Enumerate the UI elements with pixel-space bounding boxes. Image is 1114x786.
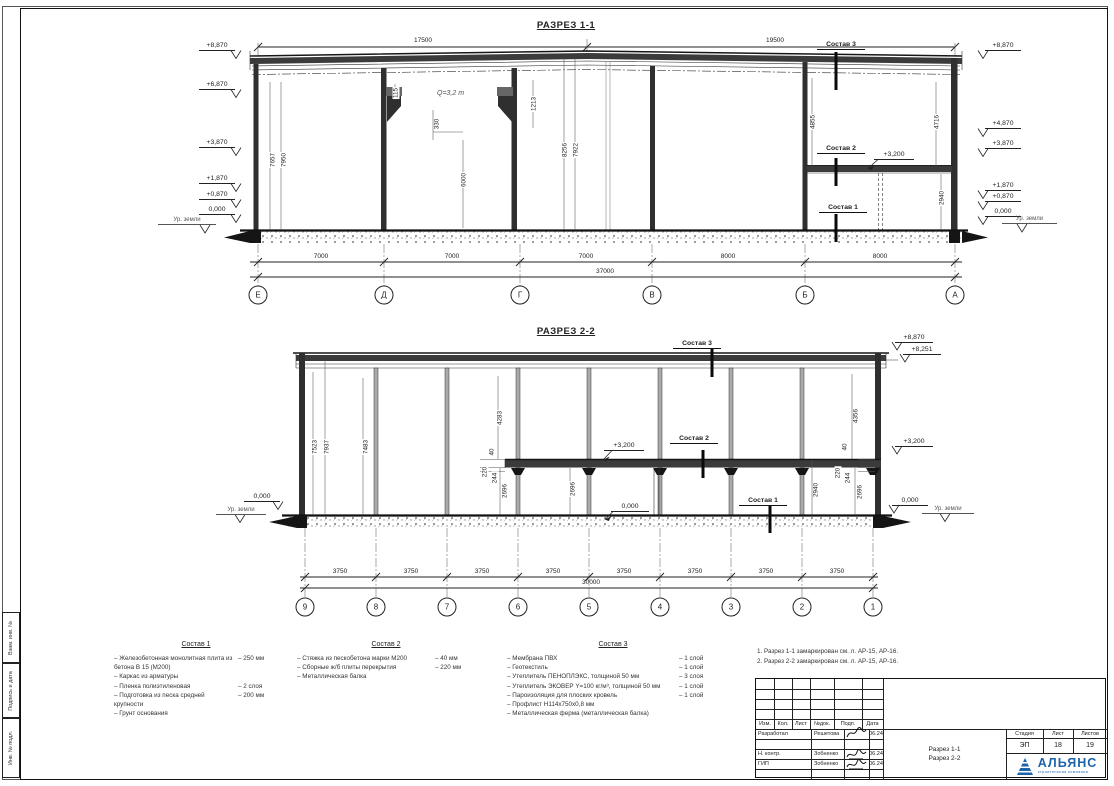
dim-1213: 1213 [531,96,538,112]
dim-7483: 7483 [363,439,370,455]
tb-name: Решетова [812,729,846,739]
legend-title: Состав 1 [114,640,278,650]
legend-item: – Подготовка из песка средней крупности–… [114,691,278,709]
axis-bubble: 8 [367,598,386,617]
dim-2940: 2940 [813,482,820,498]
sostav1-label: Состав 1 [819,203,867,213]
tb-date: 06.24 [869,729,883,739]
dim-4855: 4855 [810,114,817,130]
elevation-mark: +0,870 [199,190,235,200]
section1-geometry [200,39,1027,286]
legend-item-value [238,709,278,718]
axis-bubble: Е [249,286,268,305]
legend-title: Состав 2 [297,640,475,650]
section2-columns [374,368,804,515]
company-logo: АЛЬЯНС строительная компания [1006,753,1107,779]
dim-span: 7000 [445,253,459,260]
dim-4356: 4356 [853,408,860,424]
axis-bubble: 5 [580,598,599,617]
dim-span: 3750 [617,568,631,575]
dim-220: 220 [482,466,489,479]
legend-item-value [238,672,278,681]
tb-col-list: Лист [792,719,810,729]
tb-date: 06.24 [869,749,883,759]
elevation-mark: +3,870 [199,138,235,148]
legend-item: – Пароизоляция для плоских кровель– 1 сл… [507,691,719,700]
dim-total: 37000 [596,268,614,275]
dim-span: 8000 [873,253,887,260]
tb-stage-value: ЭП [1006,738,1043,753]
dim-4716: 4716 [934,114,941,130]
dim-span: 3750 [688,568,702,575]
elevation-mark: +8,870 [199,41,235,51]
legend-item-value [679,709,719,718]
elevation-mark: +8,870 [985,41,1021,51]
axis-bubble: Д [375,286,394,305]
legend-item: – Утеплитель ПЕНОПЛЭКС, толщиной 50 мм– … [507,672,719,681]
elevation-mark: +1,870 [985,181,1021,191]
legend-item-text: – Геотекстиль [507,663,676,672]
elevation-mark: +3,870 [985,139,1021,149]
legend-item-value: – 1 слой [679,663,719,672]
legend-item-value: – 1 слой [679,654,719,663]
elevation-mark: 0,000 [244,492,280,502]
legend-item: – Каркас из арматуры [114,672,278,681]
dim-40: 40 [489,447,496,456]
dim-span: 3750 [475,568,489,575]
sostav1-label: Состав 1 [739,496,787,506]
doc-title: Разрез 1-1 Разрез 2-2 [883,729,1006,779]
section2-geometry [235,342,950,598]
axis-bubble: 3 [722,598,741,617]
tb-col-kol: Кол. [774,719,792,729]
strip-cell-inv: Инв. № подл. [2,718,20,778]
dim-span: 17500 [414,37,432,44]
sostav2-label: Состав 2 [817,144,865,154]
section1-title: РАЗРЕЗ 1-1 [537,20,595,31]
legend-item-value [435,672,475,681]
ground-level-label: Ур. земли [216,506,266,515]
dim-total: 30000 [582,579,600,586]
dim-span: 3750 [759,568,773,575]
legend-item-text: – Металлическая балка [297,672,432,681]
strip-cell-vzam: Взам. инв. № [2,612,20,663]
legend-item: – Мембрана ПВХ– 1 слой [507,654,719,663]
legend-item-text: – Каркас из арматуры [114,672,235,681]
legend-item-value [679,700,719,709]
dim-span: 3750 [404,568,418,575]
tb-col-izm: Изм. [756,719,774,729]
tb-col-ndok: №док. [810,719,834,729]
dim-2696: 2696 [502,483,509,499]
legend-item-text: – Пароизоляция для плоских кровель [507,691,676,700]
legend-item-value: – 2 слоя [238,682,278,691]
mezzanine-slab [807,166,952,172]
elevation-mark: 0,000 [199,205,235,215]
legend-sostav-3: Состав 3 – Мембрана ПВХ– 1 слой – Геотек… [507,640,719,718]
logo-pyramid-icon [1016,757,1034,776]
axis-bubble: В [643,286,662,305]
legend-item-text: – Утеплитель ПЕНОПЛЭКС, толщиной 50 мм [507,672,676,681]
dim-7657: 7657 [270,152,277,168]
tb-name: Зобненко [812,759,846,769]
axis-bubble: 2 [793,598,812,617]
ground-level-label: Ур. земли [1002,215,1057,224]
level-0-label: 0,000 [611,502,649,512]
elevation-mark: +6,870 [199,80,235,90]
dim-8256: 8256 [562,142,569,158]
tb-role: Разработал [756,729,813,739]
legend-item: – Металлическая ферма (металлическая бал… [507,709,719,718]
dim-7922: 7922 [573,142,580,158]
elevation-mark: +8,870 [895,333,933,343]
legend-item: – Сборные ж/б плиты перекрытия– 220 мм [297,663,475,672]
axis-bubble: 9 [296,598,315,617]
doc-title-line2: Разрез 2-2 [929,755,961,762]
logo-subtext: строительная компания [1038,771,1098,775]
legend-item-text: – Профлист Н114х750х0,8 мм [507,700,676,709]
legend-item-text: – Стяжка из пескобетона марки М200 [297,654,432,663]
dim-2696: 2696 [570,481,577,497]
dim-span: 19500 [766,37,784,44]
doc-title-line1: Разрез 1-1 [929,746,961,753]
elevation-mark: +3,200 [895,437,933,447]
legend-title: Состав 3 [507,640,719,650]
tb-sheet-label: Лист [1043,729,1073,738]
note-line: 2. Разрез 2-2 замаркирован см. л. АР-15,… [757,658,898,665]
dim-span: 7000 [579,253,593,260]
legend-item-value: – 220 мм [435,663,475,672]
legend-item-text: – Пленка полиэтиленовая [114,682,235,691]
level-3200-label: +3,200 [604,441,644,451]
legend-item-value: – 1 слой [679,691,719,700]
tb-date: 06.24 [869,759,883,769]
section2-ground [269,516,911,529]
legend-item-text: – Утеплитель ЭКОВЕР Y=100 кг/м³, толщино… [507,682,676,691]
legend-item-text: – Подготовка из песка средней крупности [114,691,235,709]
legend-item: – Грунт основания [114,709,278,718]
legend-item-value: – 250 мм [238,654,278,672]
legend-item: – Профлист Н114х750х0,8 мм [507,700,719,709]
legend-item-text: – Сборные ж/б плиты перекрытия [297,663,432,672]
dim-40: 40 [842,442,849,451]
elevation-mark: +8,251 [903,345,941,355]
dim-7523: 7523 [312,439,319,455]
strip-cell-podpis: Подпись и дата [2,663,20,718]
level-3200-label: +3,200 [874,150,914,160]
legend-item-value: – 3 слоя [679,672,719,681]
legend-item-text: – Металлическая ферма (металлическая бал… [507,709,676,718]
tb-role: ГИП [756,759,813,769]
tb-sheet-value: 18 [1043,738,1073,753]
tb-sheets-value: 19 [1073,738,1107,753]
tb-name: Зобненко [812,749,846,759]
ground-level-label: Ур. земли [158,216,216,225]
tb-stage-label: Стадия [1006,729,1043,738]
legend-item: – Утеплитель ЭКОВЕР Y=100 кг/м³, толщино… [507,682,719,691]
elevation-mark: +1,870 [199,174,235,184]
elevation-mark: +4,870 [985,119,1021,129]
floor-slab [505,460,881,467]
dim-span: 3750 [546,568,560,575]
legend-item: – Металлическая балка [297,672,475,681]
dim-244: 244 [492,472,499,485]
sostav2-label: Состав 2 [670,434,718,444]
signature [845,727,868,740]
dim-244: 244 [845,472,852,485]
axis-bubble: 6 [509,598,528,617]
sostav3-label: Состав 3 [817,40,865,50]
section2-title: РАЗРЕЗ 2-2 [537,326,595,337]
strip-label: Инв. № подл. [8,731,14,765]
section1-ground [224,231,988,244]
legend-item: – Пленка полиэтиленовая– 2 слоя [114,682,278,691]
dim-span: 3750 [333,568,347,575]
dim-330: 330 [434,118,441,131]
ground-level-label: Ур. земли [922,505,974,514]
crane-capacity-label: Q=3,2 т [437,90,464,97]
legend-sostav-2: Состав 2 – Стяжка из пескобетона марки М… [297,640,475,682]
axis-bubble: 4 [651,598,670,617]
axis-bubble: Б [796,286,815,305]
logo-text: АЛЬЯНС [1038,757,1098,770]
title-block: Изм. Кол. Лист №док. Подп. Дата Разработ… [755,678,1106,778]
axis-bubble: 7 [438,598,457,617]
roof-band-2 [296,355,886,361]
dim-7937: 7937 [324,439,331,455]
dim-span: 8000 [721,253,735,260]
dim-2696: 2696 [857,484,864,500]
legend-sostav-1: Состав 1 – Железобетонная монолитная пли… [114,640,278,718]
dim-220: 220 [835,467,842,480]
dim-7950: 7950 [281,152,288,168]
tb-role: Н. контр. [756,749,813,759]
signature [845,758,868,771]
legend-item: – Геотекстиль– 1 слой [507,663,719,672]
legend-item-value: – 200 мм [238,691,278,709]
strip-label: Подпись и дата [8,671,14,711]
dim-span: 7000 [314,253,328,260]
axis-bubble: Г [511,286,530,305]
elevation-mark: +0,870 [985,192,1021,202]
drawing-sheet: РАЗРЕЗ 1-1 17500 19500 +8,870 +6,870 +3,… [0,0,1114,786]
legend-item-value: – 1 слой [679,682,719,691]
legend-item-value: – 40 мм [435,654,475,663]
legend-item-text: – Грунт основания [114,709,235,718]
dim-6000: 6000 [461,172,468,188]
tb-sheets-label: Листов [1073,729,1107,738]
note-line: 1. Разрез 1-1 замаркирован см. л. АР-15,… [757,648,898,655]
legend-item-text: – Мембрана ПВХ [507,654,676,663]
dim-span: 3750 [830,568,844,575]
legend-item-text: – Железобетонная монолитная плита из бет… [114,654,235,672]
axis-bubble: А [946,286,965,305]
legend-item: – Железобетонная монолитная плита из бет… [114,654,278,672]
strip-label: Взам. инв. № [8,620,14,654]
legend-item: – Стяжка из пескобетона марки М200– 40 м… [297,654,475,663]
floor-corbels [511,468,880,475]
axis-bubble: 1 [864,598,883,617]
dim-115: 115 [393,87,400,99]
dim-2940: 2940 [939,190,946,206]
sostav3-label: Состав 3 [673,339,721,349]
dim-4283: 4283 [497,410,504,426]
